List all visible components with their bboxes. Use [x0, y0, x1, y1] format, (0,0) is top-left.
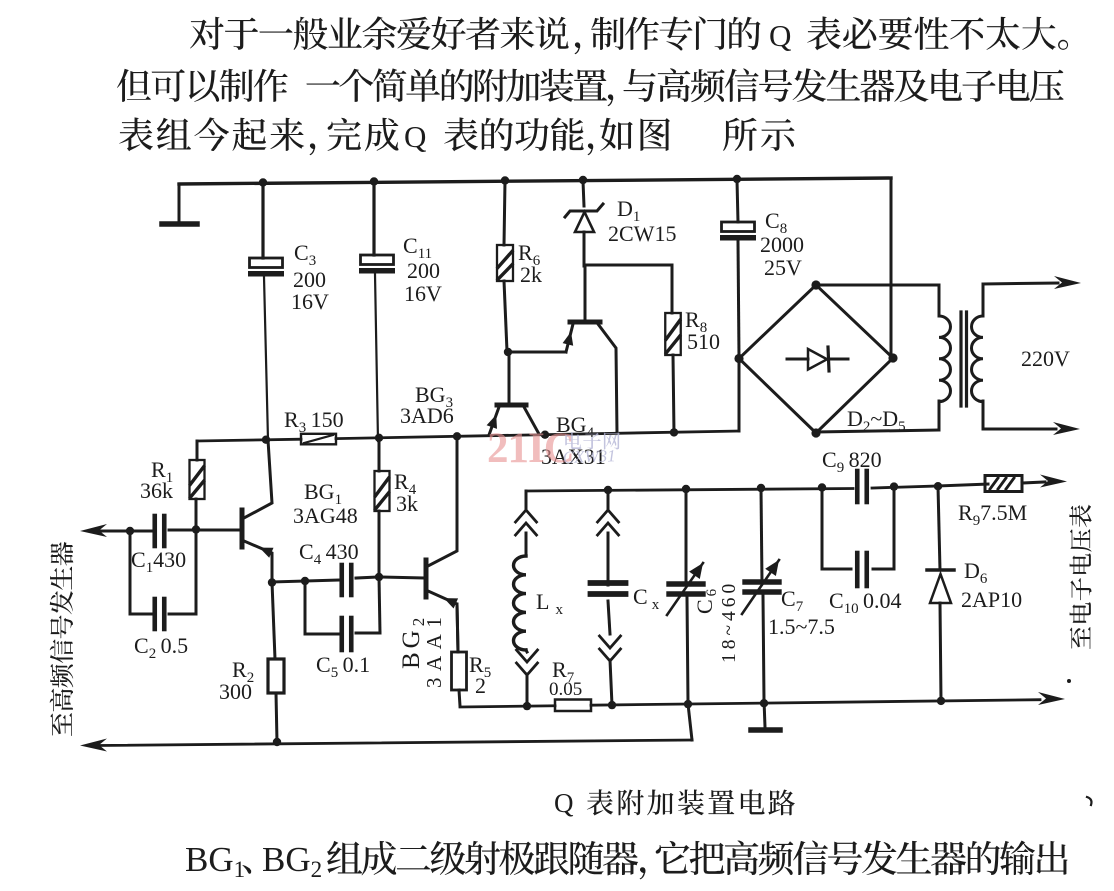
svg-text:C3​: C3​: [294, 240, 316, 269]
svg-text:200: 200: [407, 258, 440, 283]
svg-text:510: 510: [687, 329, 720, 354]
svg-text:C1​430: C1​430: [131, 547, 186, 576]
svg-text:Q: Q: [554, 788, 574, 818]
svg-text:16V: 16V: [291, 289, 329, 314]
svg-text:2k: 2k: [520, 262, 542, 287]
svg-text:2: 2: [475, 673, 486, 698]
svg-text:2AP10: 2AP10: [961, 587, 1022, 612]
svg-text:C4​ 430: C4​ 430: [299, 539, 359, 568]
svg-text:220V: 220V: [1021, 346, 1070, 371]
svg-text:BG2: BG2: [262, 840, 322, 882]
svg-text:C7​: C7​: [781, 586, 804, 615]
svg-text:Q: Q: [769, 18, 791, 53]
svg-text:C10​ 0.04: C10​ 0.04: [829, 588, 902, 617]
svg-text:18~460: 18~460: [719, 580, 740, 663]
svg-text:21IC: 21IC: [487, 425, 574, 472]
svg-text:C2​ 0.5: C2​ 0.5: [134, 633, 188, 662]
svg-text:3AA1: 3AA1: [422, 611, 446, 688]
svg-text:3AD6: 3AD6: [400, 403, 454, 428]
svg-text:Q: Q: [404, 119, 426, 154]
svg-text:Lx: Lx: [536, 589, 563, 618]
svg-text:Cx: Cx: [633, 584, 660, 613]
svg-text:25V: 25V: [764, 255, 802, 280]
svg-text:16V: 16V: [404, 281, 442, 306]
svg-text:3AG48: 3AG48: [293, 503, 358, 528]
svg-text:300: 300: [219, 679, 252, 704]
svg-text:0.05: 0.05: [549, 679, 582, 700]
svg-text:2000: 2000: [760, 232, 804, 257]
svg-text:1.5~7.5: 1.5~7.5: [768, 614, 835, 639]
svg-text:CXW31: CXW31: [562, 446, 616, 467]
svg-text:R3​ 150: R3​ 150: [284, 407, 344, 436]
svg-text:C9​ 820: C9​ 820: [822, 447, 882, 476]
svg-text:C6: C6: [692, 586, 720, 614]
svg-text:C5​ 0.1: C5​ 0.1: [316, 652, 370, 681]
svg-text:36k: 36k: [140, 478, 173, 503]
svg-text:3k: 3k: [396, 491, 418, 516]
svg-text:2CW15: 2CW15: [608, 221, 676, 246]
svg-text:BG1: BG1: [185, 840, 245, 882]
svg-text:R9​7.5M: R9​7.5M: [958, 500, 1027, 529]
svg-text:D6​: D6​: [964, 558, 988, 587]
